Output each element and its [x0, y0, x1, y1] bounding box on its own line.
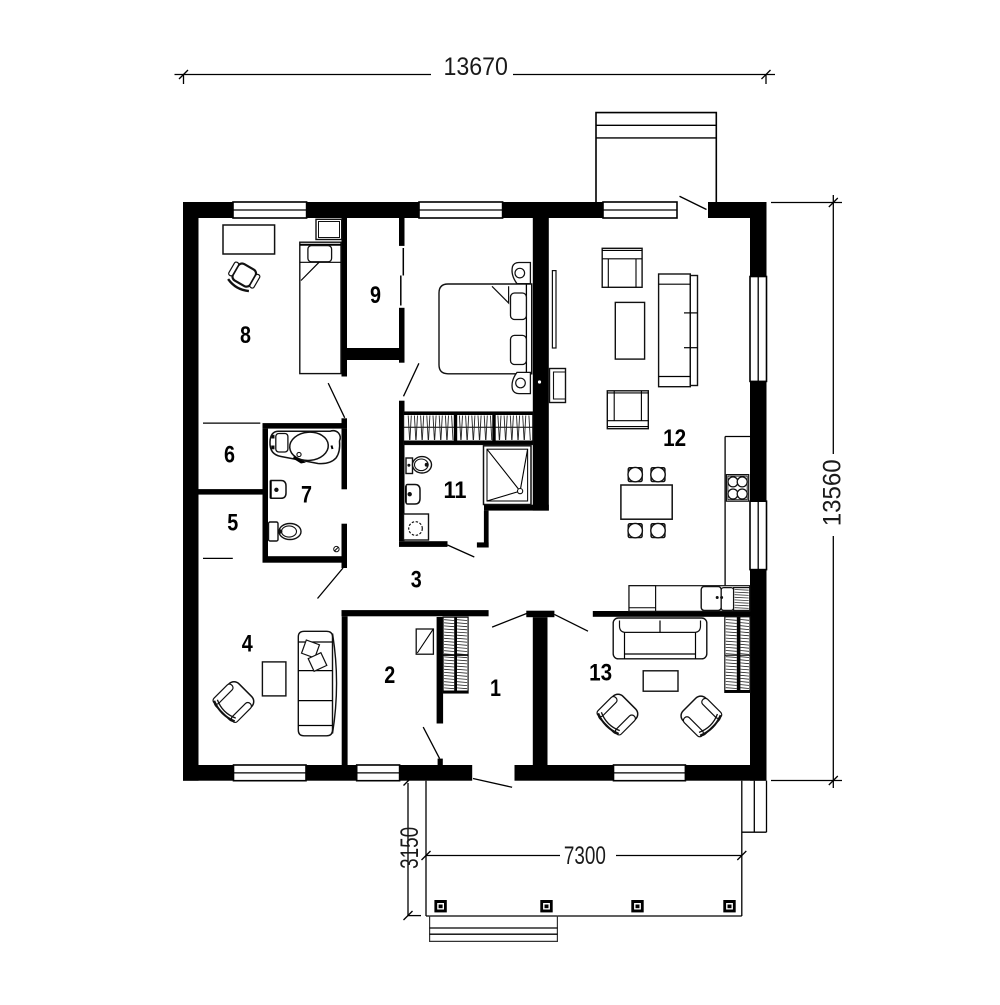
svg-text:13: 13 — [589, 660, 612, 687]
svg-text:13670: 13670 — [443, 53, 508, 81]
svg-text:3: 3 — [411, 567, 422, 594]
svg-text:2: 2 — [384, 662, 395, 689]
svg-text:13560: 13560 — [819, 459, 847, 526]
svg-text:5: 5 — [227, 510, 238, 537]
svg-text:9: 9 — [370, 282, 381, 309]
svg-text:11: 11 — [444, 477, 467, 504]
svg-text:7300: 7300 — [564, 842, 606, 870]
svg-text:6: 6 — [224, 441, 235, 468]
svg-text:12: 12 — [663, 425, 686, 452]
svg-text:8: 8 — [240, 322, 251, 349]
svg-text:1: 1 — [490, 675, 501, 702]
svg-text:4: 4 — [242, 631, 254, 658]
svg-text:7: 7 — [301, 482, 312, 509]
svg-text:3150: 3150 — [396, 827, 424, 869]
